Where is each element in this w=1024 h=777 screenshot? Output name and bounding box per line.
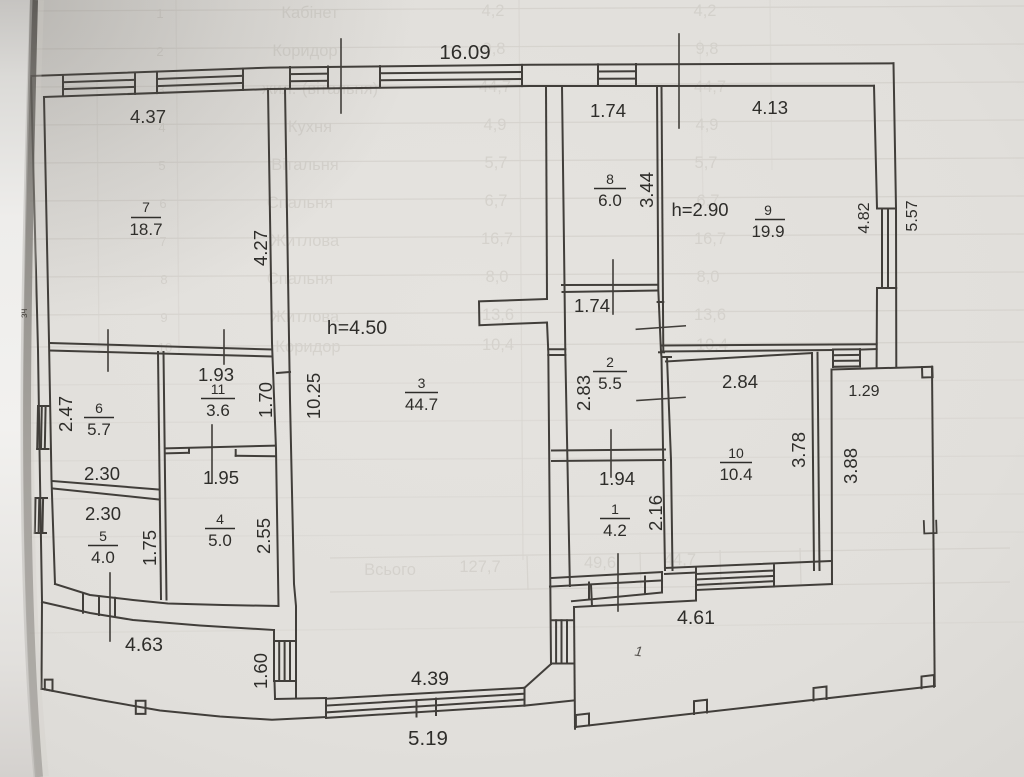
svg-text:5.7: 5.7 [87,420,111,439]
svg-text:2.16: 2.16 [645,495,666,531]
svg-text:9: 9 [764,202,772,218]
svg-text:4.2: 4.2 [603,521,627,540]
svg-text:6.0: 6.0 [598,191,622,210]
svg-text:8: 8 [606,171,614,187]
svg-text:Коридор: Коридор [275,338,340,356]
svg-text:Всього: Всього [364,561,416,579]
svg-text:3.44: 3.44 [636,172,657,208]
svg-text:5,7: 5,7 [485,154,508,172]
svg-text:2.55: 2.55 [253,518,274,554]
svg-text:6: 6 [95,400,103,416]
svg-text:1.70: 1.70 [255,382,276,418]
svg-text:49,6: 49,6 [584,554,616,572]
svg-text:h=2.90: h=2.90 [671,199,728,220]
svg-text:10,4: 10,4 [482,336,514,354]
svg-text:2.30: 2.30 [85,503,121,524]
svg-text:3.6: 3.6 [206,401,230,420]
svg-text:8,0: 8,0 [486,268,509,286]
svg-text:1.29: 1.29 [848,383,879,400]
svg-text:1.74: 1.74 [590,100,626,121]
svg-text:1.74: 1.74 [574,295,610,316]
svg-text:10.4: 10.4 [719,465,752,484]
svg-text:13,6: 13,6 [694,306,726,324]
svg-text:5,7: 5,7 [695,154,718,172]
svg-text:1.94: 1.94 [599,468,635,489]
svg-text:3.78: 3.78 [788,432,809,468]
svg-text:1.60: 1.60 [250,653,271,689]
svg-text:3: 3 [418,375,426,391]
svg-text:зч: зч [19,309,30,318]
svg-text:16,7: 16,7 [481,230,513,248]
svg-text:4.61: 4.61 [677,607,715,629]
svg-text:4.39: 4.39 [411,668,449,690]
svg-text:44.7: 44.7 [405,395,438,414]
svg-text:10: 10 [728,445,744,461]
svg-text:2.84: 2.84 [722,371,758,392]
svg-text:1.75: 1.75 [139,530,160,566]
svg-text:4,9: 4,9 [484,116,507,134]
svg-text:4,9: 4,9 [696,116,719,134]
svg-text:16.09: 16.09 [439,41,490,64]
svg-text:4,2: 4,2 [482,2,505,20]
svg-text:44,7: 44,7 [694,78,726,96]
svg-text:8,0: 8,0 [697,268,720,286]
svg-text:127,7: 127,7 [459,558,500,576]
svg-text:2.83: 2.83 [573,375,594,411]
svg-text:1: 1 [611,501,619,517]
svg-text:3.88: 3.88 [840,448,861,484]
svg-text:5: 5 [99,528,107,544]
svg-text:16,7: 16,7 [694,230,726,248]
svg-text:4: 4 [216,511,224,527]
svg-text:6,7: 6,7 [485,192,508,210]
svg-text:19.9: 19.9 [751,222,784,241]
svg-text:4.63: 4.63 [125,634,163,656]
svg-text:4,2: 4,2 [694,2,717,20]
svg-text:2: 2 [606,354,614,370]
svg-text:9,8: 9,8 [696,40,719,58]
svg-text:10.25: 10.25 [303,373,324,419]
svg-text:5.19: 5.19 [408,727,448,750]
svg-text:4.82: 4.82 [856,202,873,233]
svg-text:2.30: 2.30 [84,463,120,484]
svg-text:4.0: 4.0 [91,548,115,567]
svg-text:11: 11 [211,381,226,397]
svg-text:13,6: 13,6 [482,306,514,324]
svg-text:4.13: 4.13 [752,97,788,118]
svg-text:2.47: 2.47 [55,396,76,432]
svg-text:5.5: 5.5 [598,374,622,393]
svg-text:1.95: 1.95 [203,467,239,488]
svg-text:5.57: 5.57 [904,200,921,231]
svg-text:5.0: 5.0 [208,531,232,550]
